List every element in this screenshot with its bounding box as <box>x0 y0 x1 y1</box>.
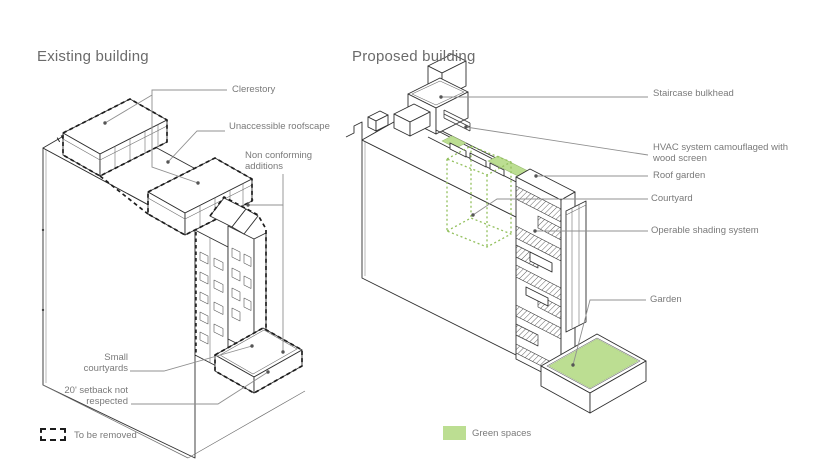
label-courtyard: Courtyard <box>651 193 693 204</box>
label-setback: 20' setback not respected <box>43 385 128 407</box>
proposed-title: Proposed building <box>352 48 476 65</box>
label-roof-garden: Roof garden <box>653 170 705 181</box>
to-be-removed-swatch <box>40 428 66 441</box>
label-unaccessible-roofscape: Unaccessible roofscape <box>229 121 330 132</box>
label-hvac: HVAC system camouflaged with wood screen <box>653 142 811 164</box>
proposed-staircase-bulkhead <box>368 54 468 136</box>
label-operable-shading: Operable shading system <box>651 225 759 236</box>
label-clerestory: Clerestory <box>232 84 275 95</box>
existing-title: Existing building <box>37 48 149 65</box>
proposed-building-drawing <box>346 54 646 413</box>
legend-to-be-removed-label: To be removed <box>74 430 137 441</box>
label-small-courtyards: Small courtyards <box>68 352 128 374</box>
green-spaces-swatch <box>443 426 466 440</box>
label-non-conforming-additions: Non conforming additions <box>245 150 327 172</box>
legend-green-spaces-label: Green spaces <box>472 428 531 439</box>
diagram-canvas: Existing building Proposed building Cler… <box>0 0 826 474</box>
label-staircase-bulkhead: Staircase bulkhead <box>653 88 734 99</box>
proposed-rear-wing <box>566 201 586 332</box>
label-garden: Garden <box>650 294 682 305</box>
